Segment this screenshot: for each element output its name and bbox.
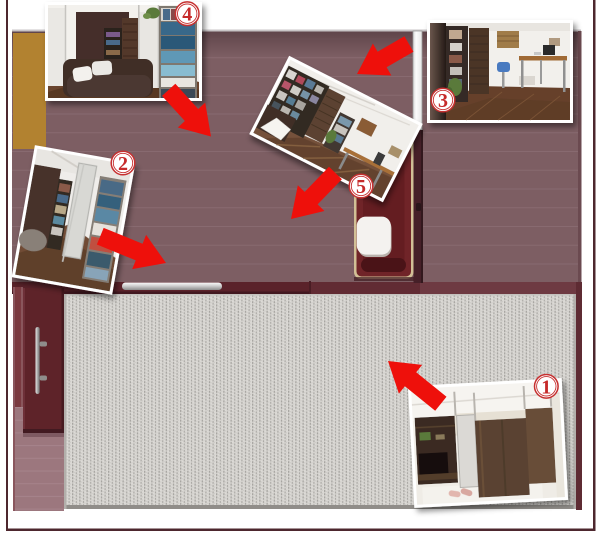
svg-text:3: 3: [438, 90, 448, 112]
svg-text:5: 5: [356, 176, 366, 198]
svg-text:1: 1: [541, 376, 551, 398]
svg-text:4: 4: [182, 4, 192, 26]
svg-text:2: 2: [118, 153, 128, 175]
